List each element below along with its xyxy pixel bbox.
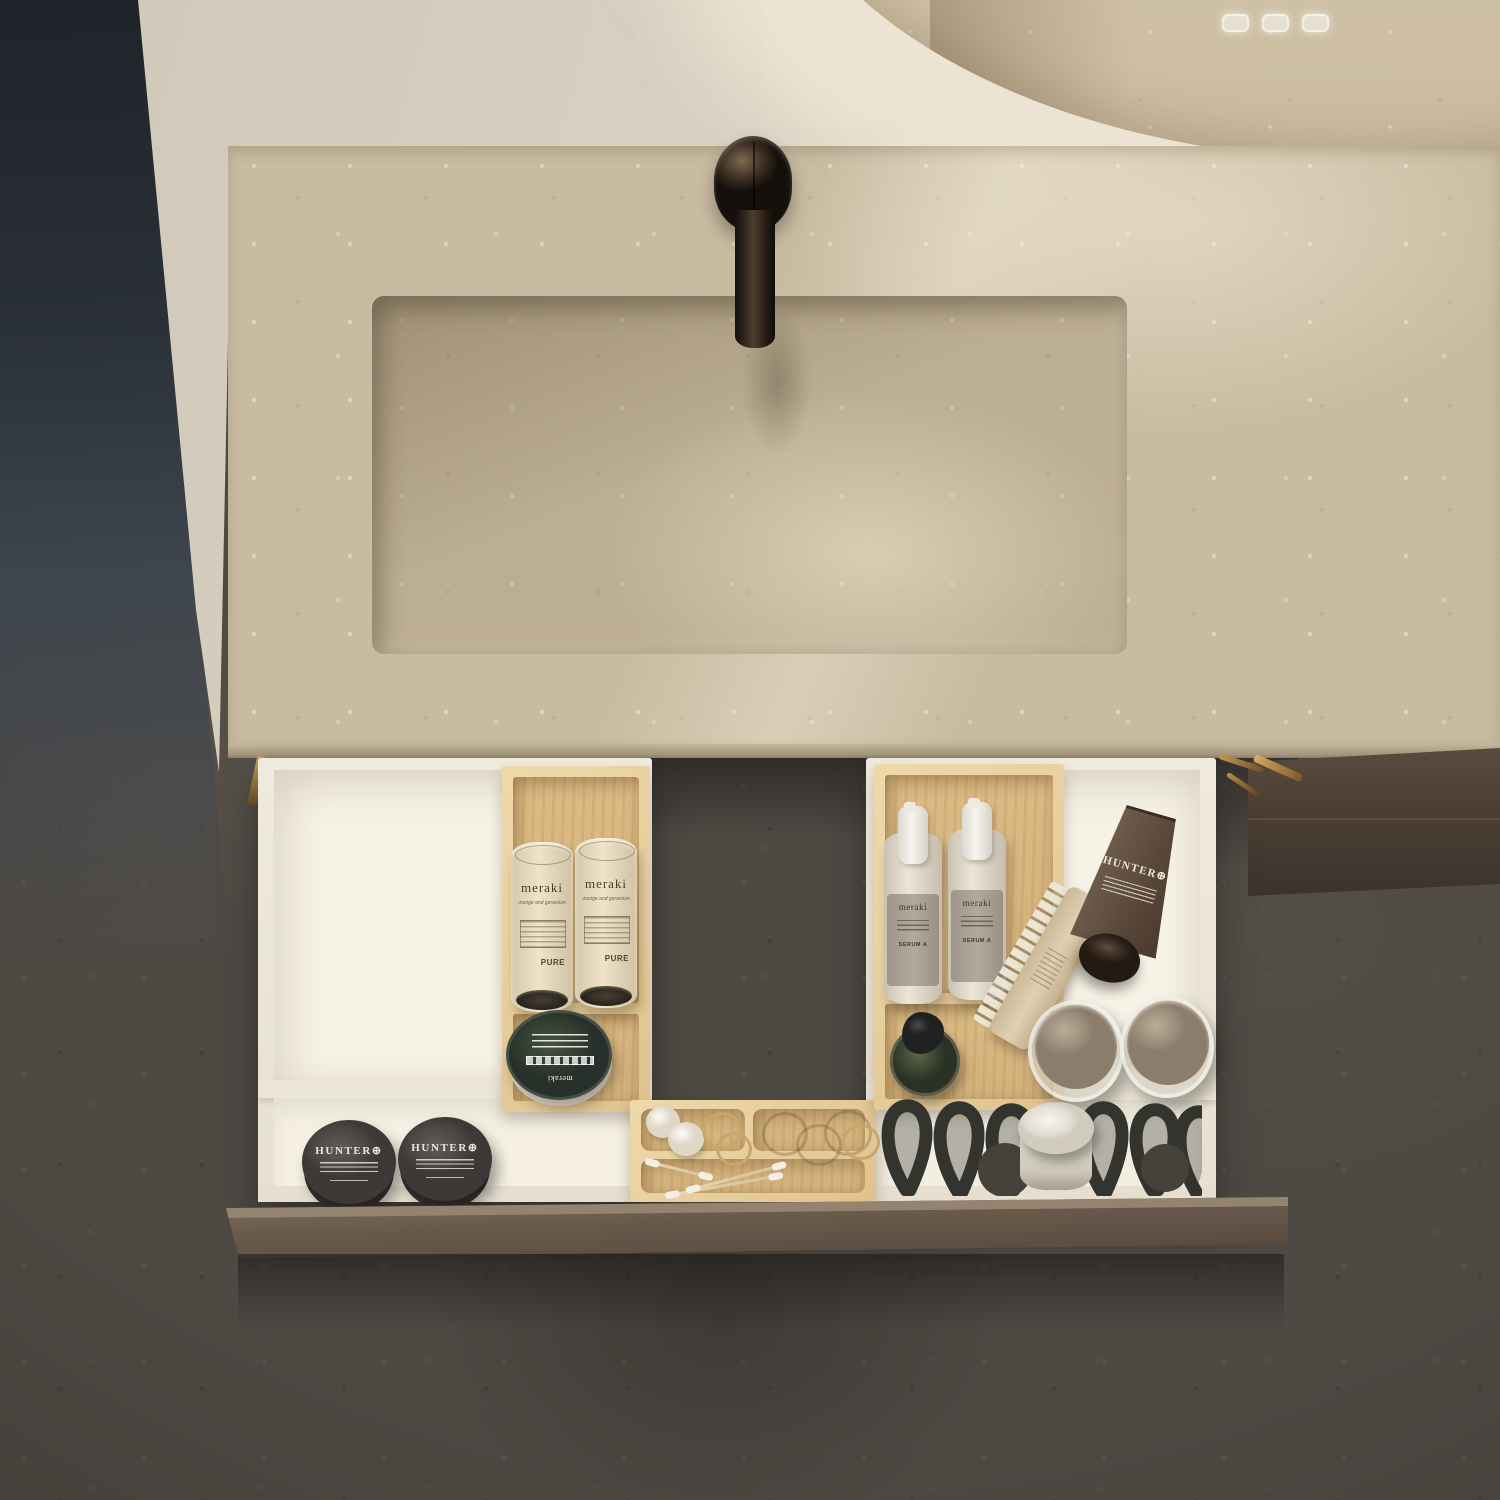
hunter-jar[interactable]: HUNTER⊕ [302, 1120, 396, 1208]
brand-symbol-icon: ⊕ [468, 1142, 479, 1154]
meraki-tube-subtitle: orange and geranium [511, 900, 573, 906]
gold-ring[interactable] [842, 1124, 880, 1160]
hunter-jar-fineprint [320, 1162, 378, 1174]
serum-fineprint [897, 920, 929, 934]
meraki-green-tin[interactable]: meraki [506, 1010, 614, 1104]
meraki-tube-fineprint [520, 920, 566, 948]
serum-pump-cap [898, 806, 928, 864]
serum-fineprint [961, 916, 993, 930]
meraki-serum-bottle[interactable]: meraki SERUM A [884, 832, 942, 1004]
tin-fineprint [532, 1034, 588, 1048]
glass-jar[interactable] [1028, 1000, 1124, 1102]
tin-label-bar [526, 1056, 594, 1065]
brand-symbol-icon: ⊕ [1155, 869, 1169, 883]
towel-loop [888, 1106, 926, 1190]
meraki-tube-fineprint [584, 916, 630, 944]
towel-loop [940, 1108, 978, 1192]
mirror-touch-icon[interactable] [1302, 14, 1329, 32]
mirror-reflection-shade [930, 0, 1130, 160]
meraki-tube[interactable]: meraki orange and geranium PURE [575, 838, 637, 1008]
hunter-jar-brand: HUNTER⊕ [302, 1144, 396, 1157]
meraki-tube-subtitle: orange and geranium [575, 896, 637, 902]
meraki-tube-brand: meraki [511, 880, 573, 896]
mirror-touch-controls [1222, 14, 1329, 32]
hunter-jar-fineprint-2 [426, 1177, 464, 1181]
hunter-jar-fineprint [416, 1159, 474, 1171]
tin-lid-top [506, 1010, 612, 1100]
mirror-touch-icon[interactable] [1222, 14, 1249, 32]
meraki-tube-footer: PURE [605, 954, 629, 963]
serum-pump-cap [962, 802, 992, 860]
glass-jar-lid [1127, 1001, 1209, 1085]
drawer-front-shadow [238, 1254, 1284, 1344]
faucet-spout [735, 210, 775, 348]
serum-brand: meraki [887, 902, 939, 912]
meraki-tube-brand: meraki [575, 876, 637, 892]
countertop-front-edge [228, 744, 1500, 758]
scene: meraki orange and geranium PURE meraki o… [0, 0, 1500, 1500]
hunter-jar-fineprint-2 [330, 1180, 368, 1184]
brand-text: HUNTER [315, 1145, 372, 1157]
dark-disc [1141, 1144, 1189, 1192]
tin-brand: meraki [506, 1074, 614, 1083]
meraki-tube-cap [580, 986, 632, 1006]
meraki-tube-cap [516, 990, 568, 1010]
meraki-tube[interactable]: meraki orange and geranium PURE [511, 842, 573, 1012]
serum-type: SERUM A [951, 938, 1003, 944]
serum-type: SERUM A [887, 942, 939, 948]
meraki-tube-footer: PURE [541, 958, 565, 967]
serum-label: meraki SERUM A [951, 890, 1003, 982]
serum-brand: meraki [951, 898, 1003, 908]
center-tray-swab-compartment [641, 1159, 865, 1193]
white-jar-lid [1018, 1102, 1094, 1154]
counter-shadow [620, 756, 900, 836]
glass-jar-lid [1035, 1005, 1117, 1089]
mirror-touch-icon[interactable] [1262, 14, 1289, 32]
brand-symbol-icon: ⊕ [372, 1145, 383, 1157]
cotton-ball[interactable] [668, 1122, 704, 1156]
glass-jar[interactable] [1120, 996, 1214, 1098]
hunter-jar[interactable]: HUNTER⊕ [398, 1117, 492, 1205]
gold-ring[interactable] [716, 1132, 752, 1166]
serum-label: meraki SERUM A [887, 894, 939, 986]
brand-text: HUNTER [411, 1142, 468, 1154]
white-jar[interactable] [1018, 1102, 1094, 1194]
dropper-bottle[interactable] [884, 1012, 964, 1098]
hunter-jar-brand: HUNTER⊕ [398, 1141, 492, 1154]
